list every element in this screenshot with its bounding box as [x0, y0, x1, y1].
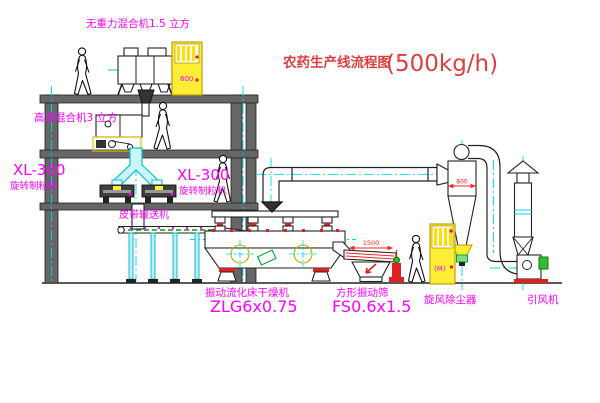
rotary-valve	[457, 255, 468, 262]
dim-sieve-length: 1500	[363, 239, 380, 247]
cabinet-ground-text: (M)	[434, 265, 446, 273]
control-cabinet-ground: (M)	[430, 224, 455, 284]
worker-figure	[75, 48, 92, 95]
cyclone-outlet-flange	[454, 145, 469, 160]
dim-cyclone-width: 800	[456, 179, 468, 186]
control-cabinet-top: 600	[172, 42, 202, 95]
label-dryer-model: ZLG6x0.75	[210, 297, 298, 316]
label-granulator-right-name: 旋转制粒机	[179, 185, 227, 197]
fan-motor	[539, 257, 548, 269]
indicator-light	[195, 55, 198, 58]
label-granulator-right-model: XL-300	[177, 166, 229, 184]
exhaust-duct	[262, 164, 450, 212]
cabinet-top-text: 600	[180, 75, 193, 83]
feed-pipe-to-floor2	[142, 103, 149, 116]
indicator-light	[450, 265, 453, 268]
label-belt-conveyor: 皮带输送机	[119, 208, 169, 221]
granulator-right	[142, 180, 176, 203]
square-vibrating-sieve	[344, 246, 396, 281]
drawing-capacity: (500kg/h)	[386, 51, 498, 77]
label-gravity-mixer: 无重力混合机1.5 立方	[86, 17, 190, 30]
label-fan: 引风机	[527, 293, 559, 306]
indicator-light	[449, 229, 452, 232]
granulator-left	[100, 180, 134, 203]
worker-figure	[409, 235, 426, 282]
floor3-slab	[40, 203, 258, 210]
worker-figure	[154, 102, 171, 149]
label-high-speed-mixer: 高速混合机3 立方	[34, 111, 118, 124]
label-granulator-left-model: XL-300	[13, 161, 65, 179]
drawing-title: 农药生产线流程图	[282, 54, 391, 71]
induced-draft-fan	[514, 255, 548, 283]
fluid-bed-dryer	[205, 211, 352, 281]
stack-rain-cap	[508, 161, 538, 173]
fan-base	[514, 279, 548, 283]
indicator-light	[195, 78, 198, 81]
label-granulator-left-name: 旋转制粒机	[10, 180, 58, 192]
exhaust-stack	[508, 161, 538, 255]
process-flow-drawing: 600	[0, 0, 600, 403]
label-sieve-model: FS0.6x1.5	[332, 297, 411, 316]
label-cyclone: 旋风除尘器	[424, 293, 477, 306]
flow-diagram-canvas: 600	[0, 0, 600, 403]
